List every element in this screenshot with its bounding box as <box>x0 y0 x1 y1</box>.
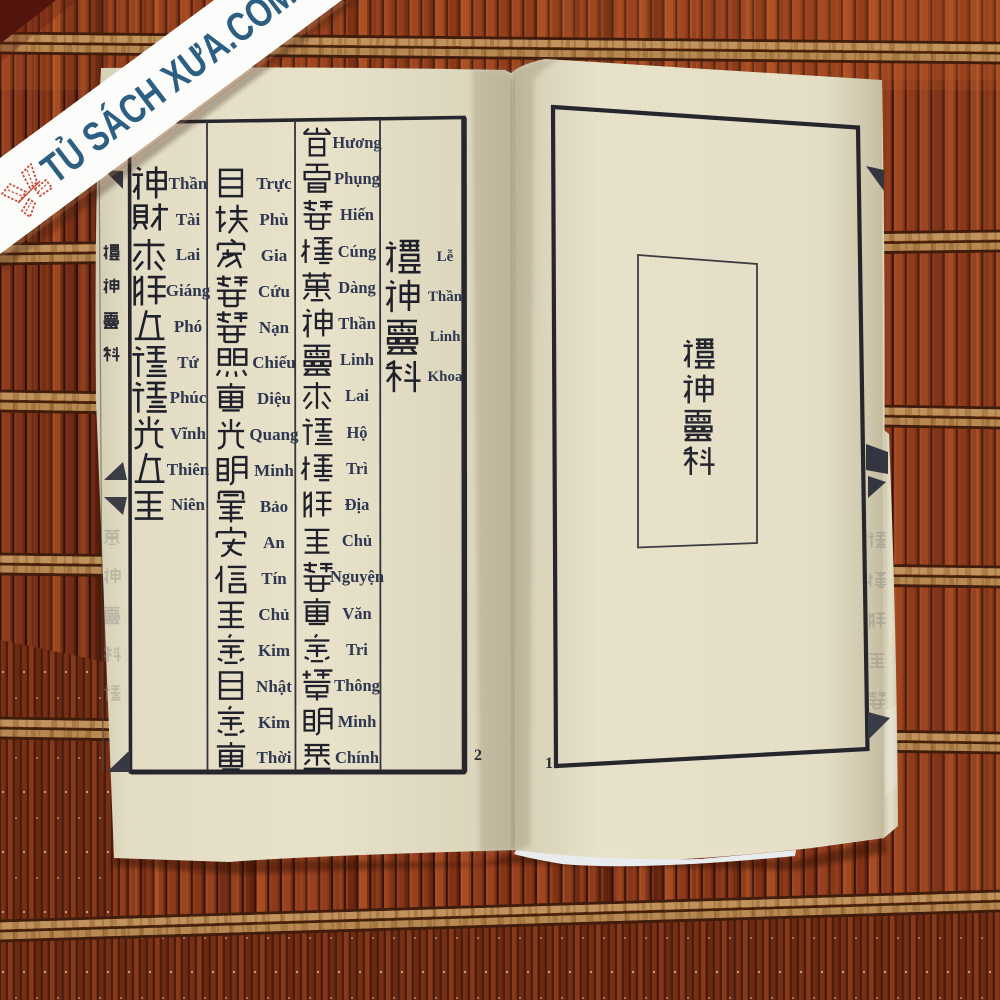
svg-text:Niên: Niên <box>171 495 206 514</box>
svg-text:Chiếu: Chiếu <box>252 353 295 372</box>
svg-text:2: 2 <box>474 747 482 764</box>
svg-text:Phụng: Phụng <box>334 169 381 188</box>
svg-text:Gia: Gia <box>261 246 288 265</box>
svg-text:Chính: Chính <box>335 748 379 767</box>
svg-text:Linh: Linh <box>430 329 462 345</box>
svg-text:Nguyện: Nguyện <box>330 567 384 586</box>
svg-text:Thần: Thần <box>338 314 376 333</box>
svg-text:Thần: Thần <box>428 289 463 305</box>
svg-text:Khoa: Khoa <box>427 369 463 385</box>
svg-text:Văn: Văn <box>342 604 371 623</box>
svg-text:Thần: Thần <box>169 174 208 193</box>
svg-text:Kim: Kim <box>258 641 290 660</box>
svg-text:Minh: Minh <box>338 712 377 731</box>
svg-text:Minh: Minh <box>254 461 294 480</box>
svg-text:Phù: Phù <box>259 210 288 229</box>
svg-text:Thiên: Thiên <box>167 460 210 479</box>
svg-text:Lai: Lai <box>345 386 369 405</box>
svg-text:Phúc: Phúc <box>170 388 207 407</box>
svg-text:Chủ: Chủ <box>342 531 372 550</box>
svg-text:Thông: Thông <box>334 676 381 695</box>
svg-text:Cúng: Cúng <box>338 242 377 261</box>
svg-text:Địa: Địa <box>345 495 370 514</box>
svg-text:1: 1 <box>545 755 553 772</box>
svg-text:An: An <box>263 533 285 552</box>
svg-text:Hiến: Hiến <box>340 205 374 224</box>
svg-text:Cứu: Cứu <box>258 282 290 301</box>
svg-text:Nạn: Nạn <box>259 318 290 337</box>
svg-text:Linh: Linh <box>340 350 374 369</box>
svg-text:Lễ: Lễ <box>437 249 454 265</box>
svg-text:Tài: Tài <box>176 210 201 229</box>
svg-text:Dàng: Dàng <box>338 278 376 297</box>
svg-text:Phó: Phó <box>174 317 202 336</box>
svg-text:Bảo: Bảo <box>260 497 288 516</box>
svg-text:Lai: Lai <box>176 245 201 264</box>
svg-text:Trì: Trì <box>346 459 368 478</box>
svg-text:Nhật: Nhật <box>256 677 292 696</box>
svg-text:Tín: Tín <box>261 569 287 588</box>
svg-text:Tứ: Tứ <box>177 353 199 372</box>
svg-text:Diệu: Diệu <box>257 389 291 408</box>
svg-text:Chủ: Chủ <box>258 605 289 624</box>
svg-text:Trực: Trực <box>256 174 292 193</box>
svg-text:Kim: Kim <box>258 713 290 732</box>
svg-text:Hương: Hương <box>332 133 382 152</box>
svg-text:Hộ: Hộ <box>346 423 367 442</box>
svg-text:Tri: Tri <box>346 640 368 659</box>
svg-text:Vĩnh: Vĩnh <box>170 424 206 443</box>
svg-text:Quang: Quang <box>249 425 299 444</box>
svg-text:Thời: Thời <box>257 748 292 767</box>
svg-text:Giáng: Giáng <box>166 281 211 300</box>
